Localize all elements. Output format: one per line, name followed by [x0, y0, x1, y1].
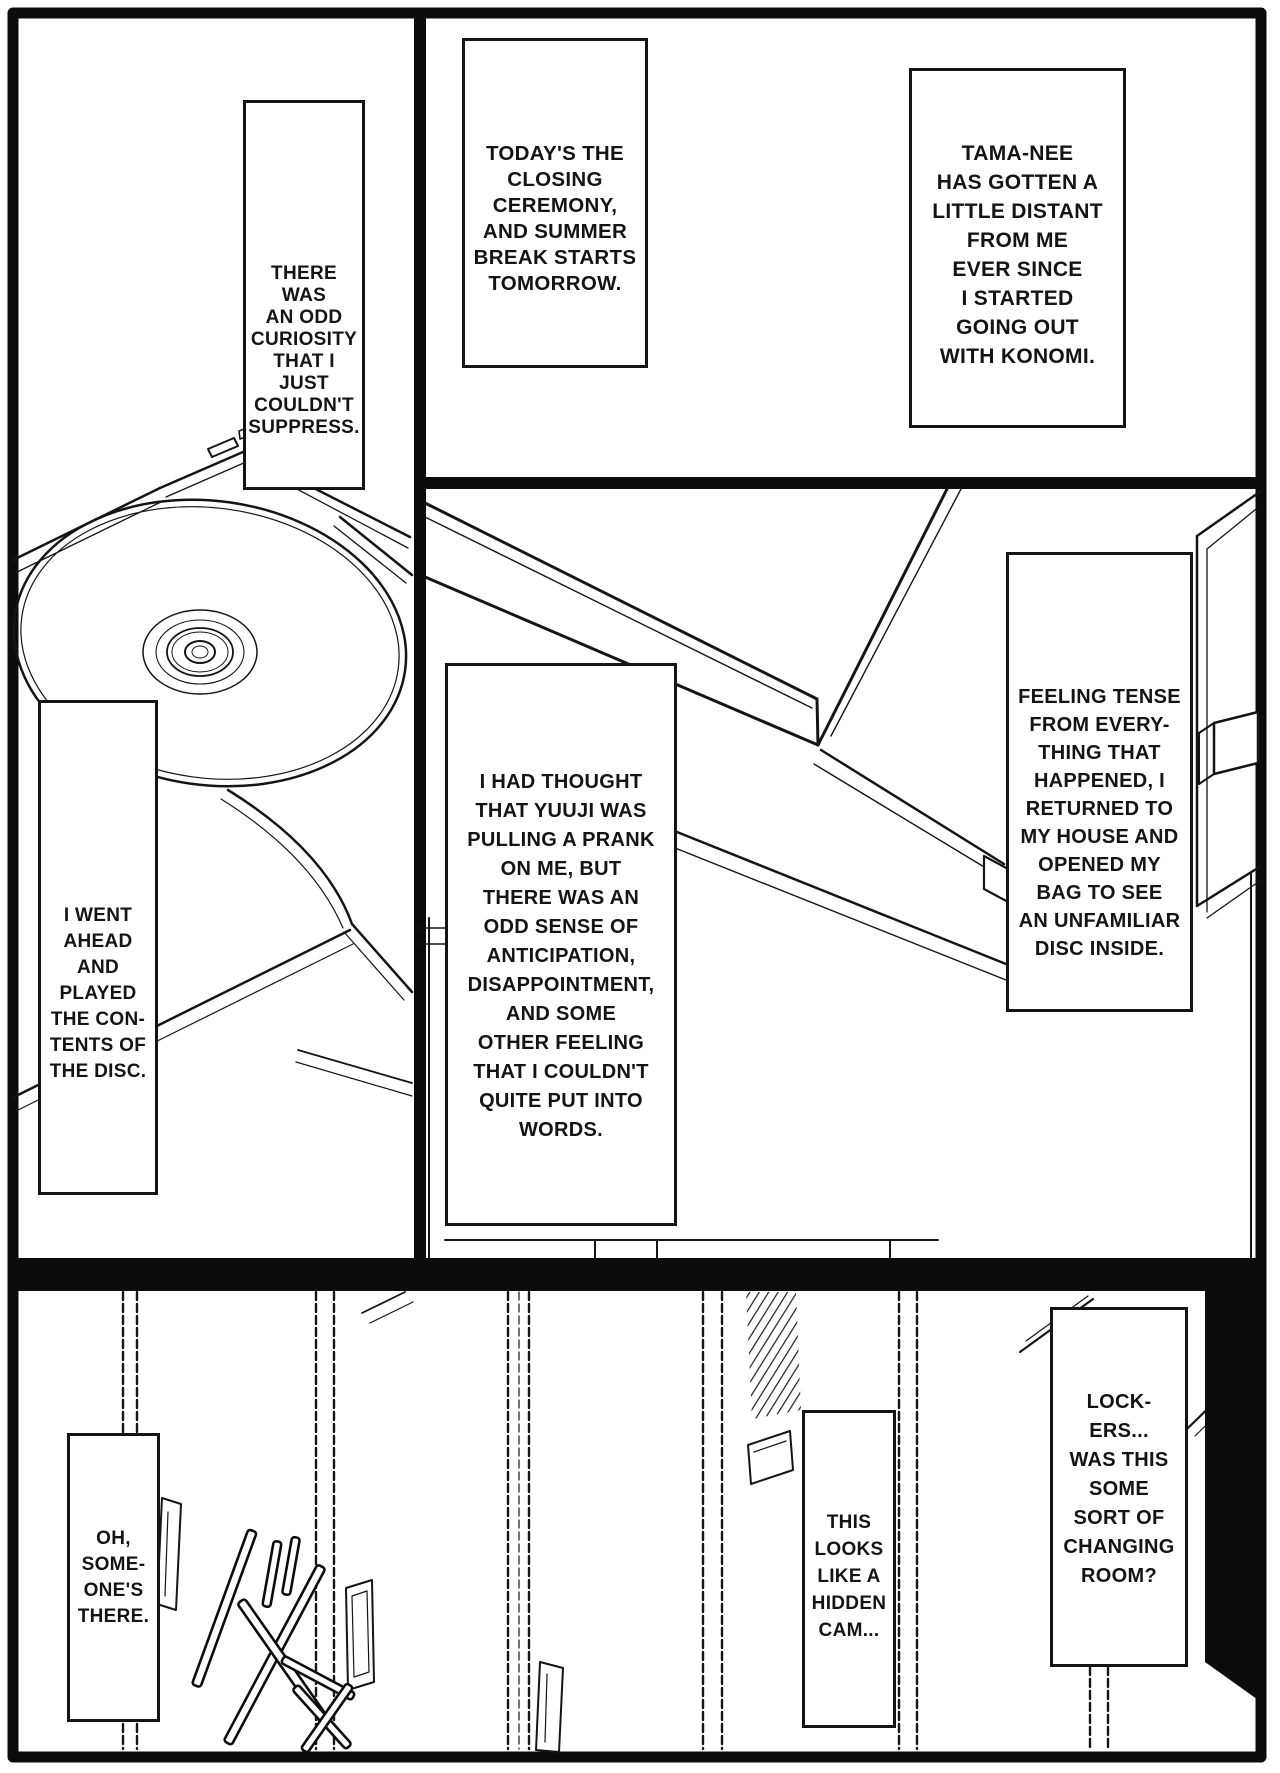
sfx-gacha	[192, 1529, 355, 1753]
caption-text: THIS LOOKS LIKE A HIDDEN CAM...	[806, 1509, 892, 1644]
caption-there-was: THERE WAS AN ODD CURIOSITY THAT I JUST C…	[243, 100, 365, 490]
caption-i-had-thought: I HAD THOUGHT THAT YUUJI WAS PULLING A P…	[445, 663, 677, 1226]
manga-page: THERE WAS AN ODD CURIOSITY THAT I JUST C…	[0, 0, 1280, 1773]
caption-tama-nee: TAMA-NEE HAS GOTTEN A LITTLE DISTANT FRO…	[909, 68, 1126, 428]
caption-oh-someone: OH, SOME- ONE'S THERE.	[67, 1433, 160, 1722]
caption-closing-ceremony: TODAY'S THE CLOSING CEREMONY, AND SUMMER…	[462, 38, 648, 368]
caption-text: OH, SOME- ONE'S THERE.	[71, 1526, 156, 1630]
caption-text: FEELING TENSE FROM EVERY- THING THAT HAP…	[1010, 683, 1189, 963]
caption-feeling-tense: FEELING TENSE FROM EVERY- THING THAT HAP…	[1006, 552, 1193, 1012]
caption-hidden-cam: THIS LOOKS LIKE A HIDDEN CAM...	[802, 1410, 896, 1728]
caption-text: I WENT AHEAD AND PLAYED THE CON- TENTS O…	[42, 903, 154, 1085]
caption-i-went-ahead: I WENT AHEAD AND PLAYED THE CON- TENTS O…	[38, 700, 158, 1195]
caption-text: LOCK- ERS... WAS THIS SOME SORT OF CHANG…	[1054, 1388, 1184, 1591]
caption-text: I HAD THOUGHT THAT YUUJI WAS PULLING A P…	[449, 768, 673, 1145]
caption-text: THERE WAS AN ODD CURIOSITY THAT I JUST C…	[247, 263, 361, 439]
caption-lockers: LOCK- ERS... WAS THIS SOME SORT OF CHANG…	[1050, 1307, 1188, 1667]
caption-text: TAMA-NEE HAS GOTTEN A LITTLE DISTANT FRO…	[913, 139, 1122, 371]
caption-text: TODAY'S THE CLOSING CEREMONY, AND SUMMER…	[466, 141, 644, 297]
